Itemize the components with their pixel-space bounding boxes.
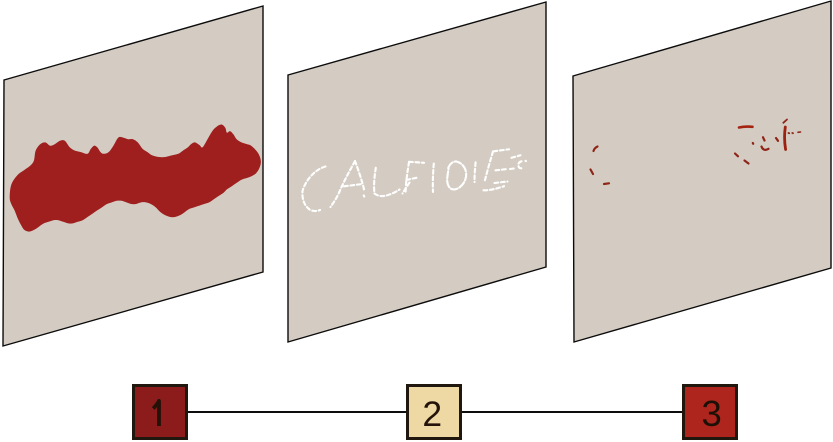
svg-text:3: 3	[702, 393, 722, 434]
svg-text:2: 2	[422, 394, 442, 434]
